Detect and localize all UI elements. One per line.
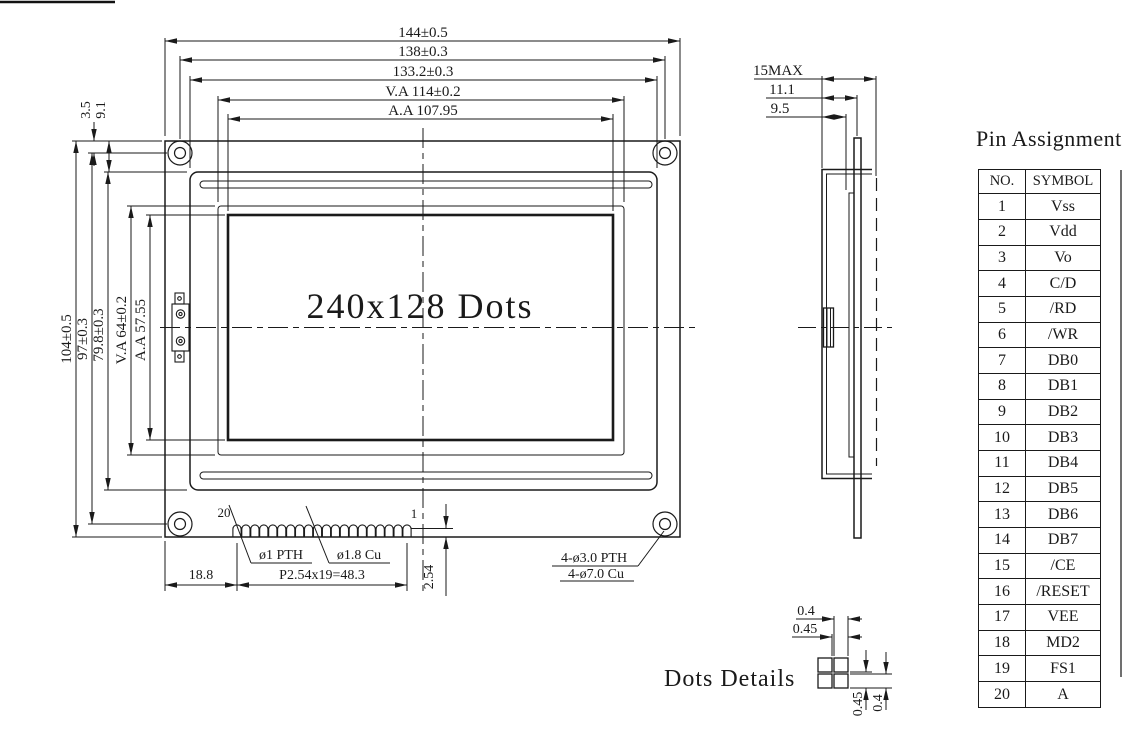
table-row: 2Vdd	[979, 220, 1101, 246]
dim-dot-pitch-h: 0.45	[793, 622, 818, 637]
pin-no: 19	[979, 656, 1026, 682]
table-row: 17VEE	[979, 605, 1101, 631]
lcd-module-drawing-sheet: 144±0.5 138±0.3 133.2±0.3 V.A 114±0.2 A.…	[0, 0, 1126, 737]
viewing-area	[218, 206, 624, 455]
dim-width-holes: 138±0.3	[398, 44, 447, 60]
table-row: 14DB7	[979, 528, 1101, 554]
pin-no: 2	[979, 220, 1026, 246]
sheet-border	[0, 2, 1121, 677]
pin-symbol: VEE	[1026, 605, 1101, 631]
pin-symbol: C/D	[1026, 271, 1101, 297]
pin-no: 12	[979, 476, 1026, 502]
table-row: 6/WR	[979, 322, 1101, 348]
table-row: 1Vss	[979, 194, 1101, 220]
dot-squares	[818, 658, 848, 688]
pin-symbol: DB2	[1026, 399, 1101, 425]
table-row: 7DB0	[979, 348, 1101, 374]
pin-symbol: DB3	[1026, 425, 1101, 451]
dim-width-aa: A.A 107.95	[388, 103, 458, 119]
pin-symbol: Vss	[1026, 194, 1101, 220]
table-row: 19FS1	[979, 656, 1101, 682]
table-row: 18MD2	[979, 630, 1101, 656]
dim-pin-edge-offset: 18.8	[189, 568, 214, 583]
pin-symbol: MD2	[1026, 630, 1101, 656]
dim-hole-edge-offset: 3.5	[79, 101, 94, 119]
pin-no: 1	[979, 194, 1026, 220]
dim-width-outline: 144±0.5	[398, 25, 447, 41]
dim-dot-width: 0.4	[797, 604, 815, 619]
pin-symbol: DB6	[1026, 502, 1101, 528]
table-row: 15/CE	[979, 553, 1101, 579]
pin-symbol: DB4	[1026, 451, 1101, 477]
connector-pins	[233, 525, 411, 537]
table-row: 13DB6	[979, 502, 1101, 528]
pin-no: 8	[979, 374, 1026, 400]
front-view	[160, 128, 700, 596]
pin-no: 3	[979, 245, 1026, 271]
pin-symbol: DB0	[1026, 348, 1101, 374]
table-row: 9DB2	[979, 399, 1101, 425]
pin-1-label: 1	[411, 506, 418, 521]
side-view	[754, 76, 894, 538]
pin-no: 5	[979, 297, 1026, 323]
dim-bezel-edge-offset: 9.1	[94, 101, 109, 119]
pin-assignment-title: Pin Assignment	[976, 126, 1126, 152]
table-row: 4C/D	[979, 271, 1101, 297]
pin-no: 4	[979, 271, 1026, 297]
dim-width-va: V.A 114±0.2	[385, 84, 460, 100]
col-header-no: NO.	[979, 170, 1026, 194]
dim-thickness-frame: 11.1	[769, 82, 795, 98]
dim-thickness-max: 15MAX	[753, 63, 803, 79]
pin-no: 7	[979, 348, 1026, 374]
pin-no: 15	[979, 553, 1026, 579]
pin-symbol: /RESET	[1026, 579, 1101, 605]
table-header-row: NO. SYMBOL	[979, 170, 1101, 194]
table-row: 8DB1	[979, 374, 1101, 400]
pin-symbol: Vo	[1026, 245, 1101, 271]
dim-pin-row-offset: 2.54	[422, 565, 437, 590]
note-mount-hole-cu: 4-ø7.0 Cu	[568, 567, 624, 582]
dim-height-bezel: 79.8±0.3	[91, 308, 107, 361]
pin-symbol: A	[1026, 682, 1101, 708]
bezel-slot-top	[200, 181, 652, 188]
dim-dot-height: 0.4	[871, 694, 886, 712]
dim-height-outline: 104±0.5	[59, 314, 75, 363]
dim-width-bezel: 133.2±0.3	[393, 64, 454, 80]
pin-symbol: /RD	[1026, 297, 1101, 323]
pin-no: 9	[979, 399, 1026, 425]
pin-20-label: 20	[218, 505, 231, 520]
note-pin-hole-pth: ø1 PTH	[259, 548, 303, 563]
dim-pin-pitch: P2.54x19=48.3	[279, 568, 365, 583]
pin-no: 20	[979, 682, 1026, 708]
dim-height-holes: 97±0.3	[75, 318, 91, 360]
table-row: 20A	[979, 682, 1101, 708]
display-area-label: 240x128 Dots	[306, 286, 533, 326]
dim-dot-pitch-v: 0.45	[851, 692, 866, 717]
table-row: 10DB3	[979, 425, 1101, 451]
frame-section-outer	[822, 170, 872, 479]
pin-symbol: DB5	[1026, 476, 1101, 502]
note-pin-hole-cu: ø1.8 Cu	[337, 548, 381, 563]
pin-symbol: /WR	[1026, 322, 1101, 348]
dots-details-label: Dots Details	[664, 666, 795, 692]
pin-no: 13	[979, 502, 1026, 528]
bezel-slot-bottom	[200, 472, 652, 479]
dim-thickness-glass: 9.5	[771, 101, 790, 117]
dim-height-va: V.A 64±0.2	[114, 296, 130, 364]
pin-assignment-table: NO. SYMBOL 1Vss 2Vdd 3Vo 4C/D 5/RD 6/WR …	[978, 169, 1101, 708]
table-row: 3Vo	[979, 245, 1101, 271]
pin-symbol: Vdd	[1026, 220, 1101, 246]
pin-no: 11	[979, 451, 1026, 477]
table-row: 12DB5	[979, 476, 1101, 502]
note-mount-hole-pth: 4-ø3.0 PTH	[561, 551, 627, 566]
centerlines	[160, 128, 700, 596]
pin-symbol: DB1	[1026, 374, 1101, 400]
table-row: 5/RD	[979, 297, 1101, 323]
pin-no: 10	[979, 425, 1026, 451]
pin-symbol: FS1	[1026, 656, 1101, 682]
pin-symbol: /CE	[1026, 553, 1101, 579]
pin-no: 17	[979, 605, 1026, 631]
col-header-symbol: SYMBOL	[1026, 170, 1101, 194]
technical-drawing-canvas: 144±0.5 138±0.3 133.2±0.3 V.A 114±0.2 A.…	[0, 0, 1126, 737]
table-row: 11DB4	[979, 451, 1101, 477]
pin-no: 14	[979, 528, 1026, 554]
dim-height-aa: A.A 57.55	[133, 299, 149, 361]
pin-symbol: DB7	[1026, 528, 1101, 554]
pin-no: 6	[979, 322, 1026, 348]
pin-no: 16	[979, 579, 1026, 605]
table-row: 16/RESET	[979, 579, 1101, 605]
pin-no: 18	[979, 630, 1026, 656]
